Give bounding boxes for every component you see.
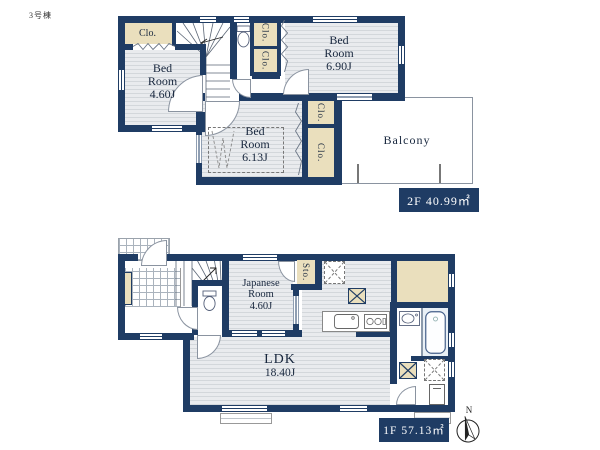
kitchen-sink-icon [334,314,359,329]
wall-segment [398,64,405,101]
x-mark-icon [425,360,444,380]
closet-label: Clo. [316,143,326,162]
x-mark-icon [349,289,365,303]
folding-door-icon [281,20,288,72]
wall-segment [391,261,397,302]
cabinet [429,384,445,405]
room-size: 4.60J [125,88,200,101]
folding-door-icon [295,103,302,175]
window [243,254,277,261]
sliding-door [337,93,372,101]
storage-room [397,261,448,302]
wall-segment [118,44,133,50]
compass-north-label: N [466,405,473,415]
x-mark-icon [325,262,344,283]
room-size: 18.40J [235,367,325,379]
wall-segment [222,258,229,335]
wall-segment [448,254,455,274]
room-name: Bed [224,125,286,138]
window [118,70,125,90]
terrace-step [220,413,272,424]
room-label-japanese: Japanese Room 4.60J [230,278,292,312]
window [448,274,455,287]
closet-mid-2: Clo. [254,49,277,72]
floor2-area-label: 2F 40.99㎡ [399,188,479,212]
storage-label: Sto. [301,263,311,281]
sliding-door [222,405,267,412]
wall-segment [254,46,277,49]
window [200,16,216,23]
balcony-post [439,164,441,183]
window [448,333,455,347]
cabinet-line [433,388,441,389]
wall-segment [197,280,222,286]
room-name: Japanese [230,278,292,289]
closet-label: Clo. [139,28,156,39]
wall-segment [118,333,140,340]
wall-segment [391,302,448,308]
closet-label: Clo. [316,103,326,122]
room-label-bedroom-a: Bed Room 4.60J [125,62,200,101]
wall-segment [175,44,203,50]
door-arc [177,307,198,330]
closet-label: Clo. [261,23,271,42]
wall-segment [230,16,237,79]
room-name: Room [230,289,292,300]
wall-segment [183,333,190,412]
window [196,135,202,163]
wall-segment [183,405,222,412]
room-name: Bed [125,62,200,75]
wall-segment [293,284,299,296]
building-label: 3号棟 [29,10,52,21]
room-name: Balcony [341,134,473,147]
sliding-door [262,330,285,337]
room-size: 4.60J [230,301,292,312]
bath-divider [421,308,423,356]
compass-icon: N [452,404,484,448]
sliding-door [293,296,299,324]
room-size: 6.13J [224,151,286,164]
room-name: Room [299,47,379,60]
wall-segment [222,330,232,337]
folding-door-icon [133,43,175,50]
room-name: Room [125,75,200,88]
wall-segment [252,72,280,79]
room-label-bedroom-b: Bed Room 6.90J [299,34,379,73]
closet-e-1: Clo. [308,101,334,124]
floor1-area-label: 1F 57.13㎡ [379,418,449,442]
room-name: Room [224,138,286,151]
wall-segment [398,16,405,46]
wall-segment [302,101,308,177]
sliding-door [232,330,257,337]
door-arc [396,386,416,405]
door-arc [232,79,251,98]
wall-segment [390,302,397,384]
wall-segment [118,254,138,261]
area-text: 1F 57.13㎡ [383,422,444,438]
window [152,125,182,132]
room-size: 6.90J [299,60,379,73]
wall-segment [267,405,340,412]
room-name: Bed [299,34,379,47]
room-label-bedroom-c: Bed Room 6.13J [224,125,286,164]
wall-segment [230,72,237,79]
washing-machine-space [424,359,445,381]
storage-sto: Sto. [297,260,315,284]
toilet-icon [202,290,217,312]
balcony-post [357,164,359,183]
wall-segment [118,16,405,23]
window [140,333,162,340]
closet-e-2: Clo. [308,128,334,177]
wall-segment [448,287,455,333]
wall-segment [172,16,176,46]
room-label-ldk: LDK 18.40J [235,352,325,380]
washbasin-icon [399,311,420,326]
wall-segment [390,356,397,361]
window [313,16,357,23]
window [340,405,367,412]
window [398,46,405,64]
room-label-balcony: Balcony [341,134,473,147]
floor-storage-icon [399,362,417,379]
closet-mid-1: Clo. [254,19,277,46]
wall-segment [118,261,125,340]
floor-storage-icon [348,288,366,304]
window [448,362,455,377]
x-mark-icon [400,363,416,378]
wall-segment [367,405,455,412]
wall-segment [196,177,342,185]
toilet-icon [236,25,251,48]
closet-label: Clo. [261,51,271,70]
area-text: 2F 40.99㎡ [407,192,471,209]
stove-icon [364,314,387,329]
wall-segment [165,254,243,261]
wall-segment [293,324,299,335]
closet-nw: Clo. [123,22,172,44]
window [234,16,249,23]
wall-segment [308,124,334,128]
refrigerator-space [324,261,345,284]
room-name: LDK [235,352,325,367]
floor-plan: 3号棟 Clo. Clo. Clo. Clo. Clo. [0,0,600,450]
bathtub-icon [425,311,446,354]
